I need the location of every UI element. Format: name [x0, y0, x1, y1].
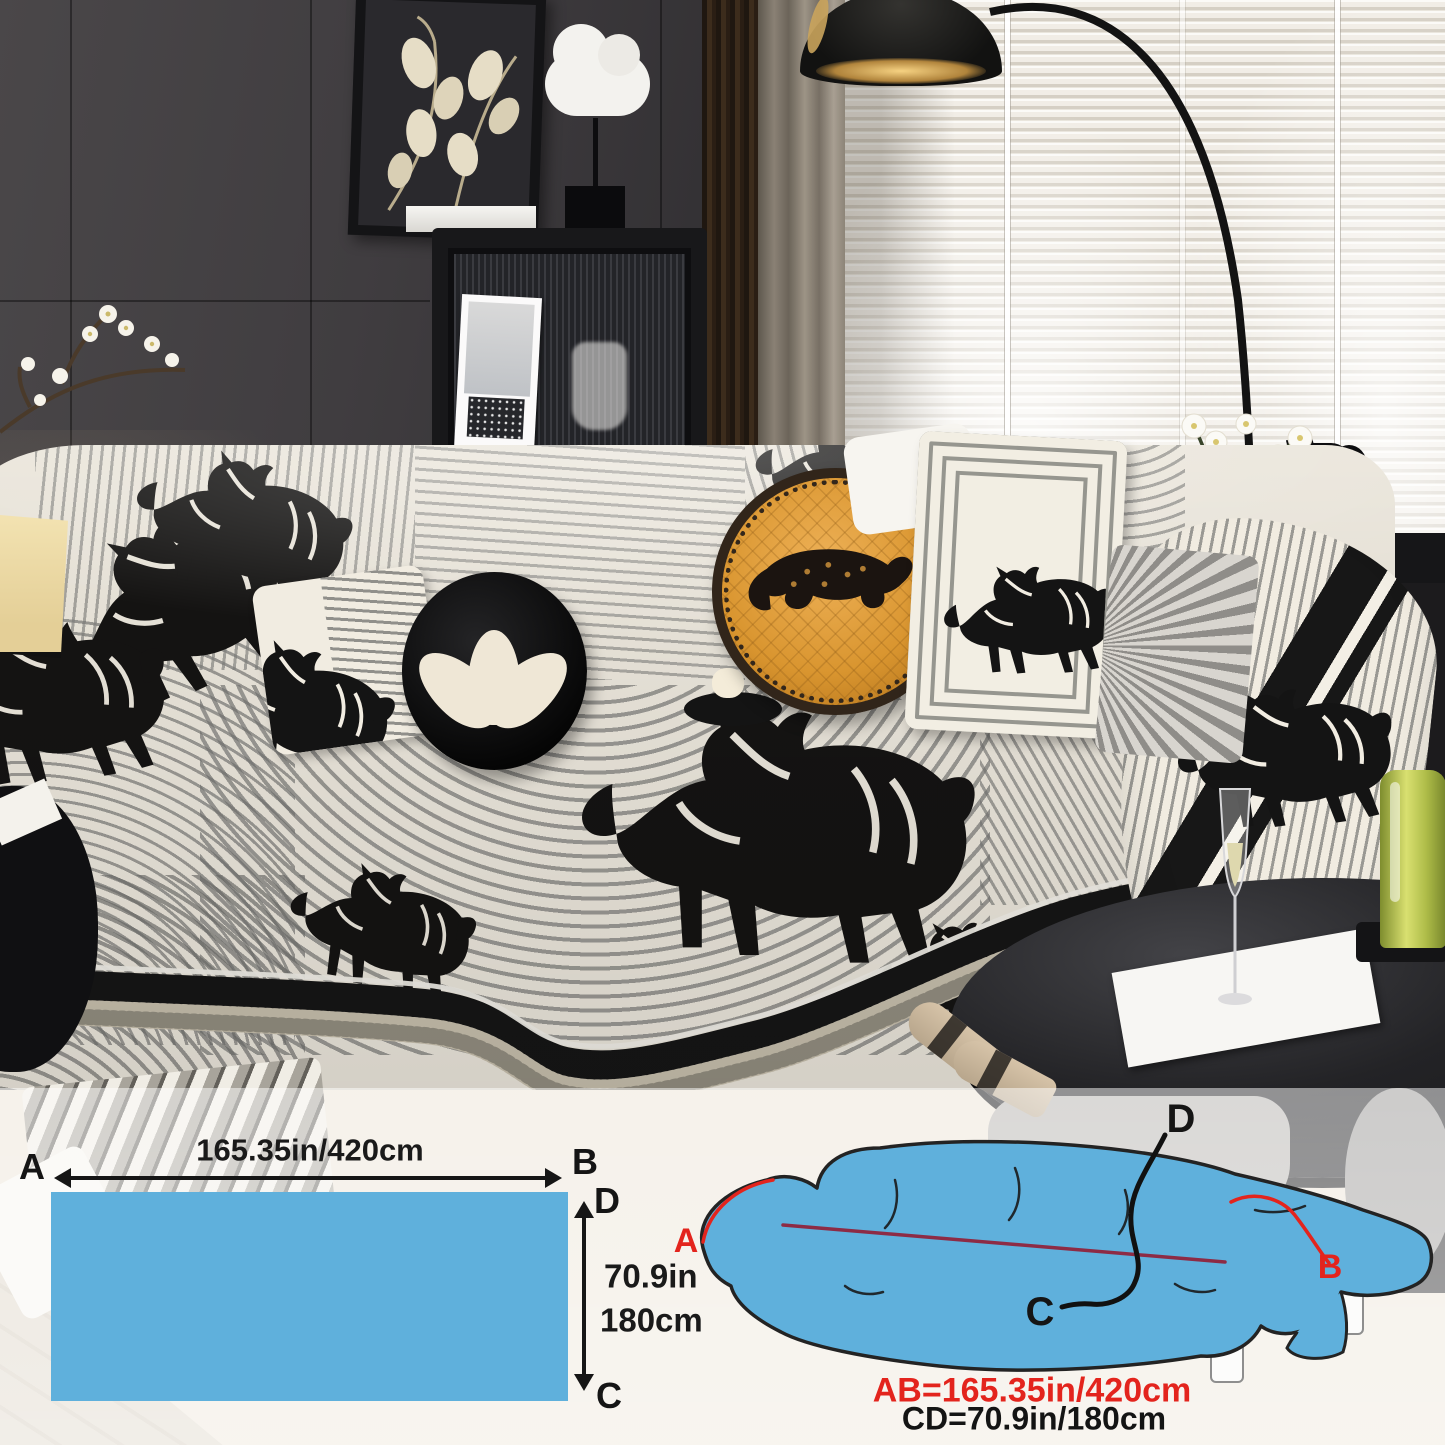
- lamp-warm-glow: [816, 58, 986, 84]
- champagne-flute: [1198, 783, 1272, 1019]
- cloud-lamp-stem: [593, 118, 598, 188]
- cabinet-vase: [572, 342, 627, 430]
- white-overlay: [0, 1088, 1445, 1445]
- leopard-motif: [740, 526, 932, 646]
- cloud-lamp: [545, 52, 650, 116]
- blossom-branch: [0, 272, 200, 447]
- artwork-leaves: [358, 0, 536, 231]
- polaroid-pattern: [467, 397, 525, 440]
- polaroid-card: [454, 294, 542, 454]
- pillow-motif: [919, 551, 1107, 720]
- polaroid-photo: [464, 301, 535, 396]
- ball-petal: [468, 630, 520, 725]
- knot-ball-pillow: [402, 572, 587, 770]
- candle: [712, 668, 744, 698]
- arc-floor-lamp-shade: [800, 0, 1002, 86]
- wine-bottle: [1380, 770, 1445, 948]
- zebra-square-pillow: [904, 431, 1127, 739]
- product-image: 165.35in/420cm A B D C 70.9in 180cm: [0, 0, 1445, 1445]
- table-lamp-shade: [0, 512, 68, 658]
- chevron-pillow: [1094, 544, 1260, 764]
